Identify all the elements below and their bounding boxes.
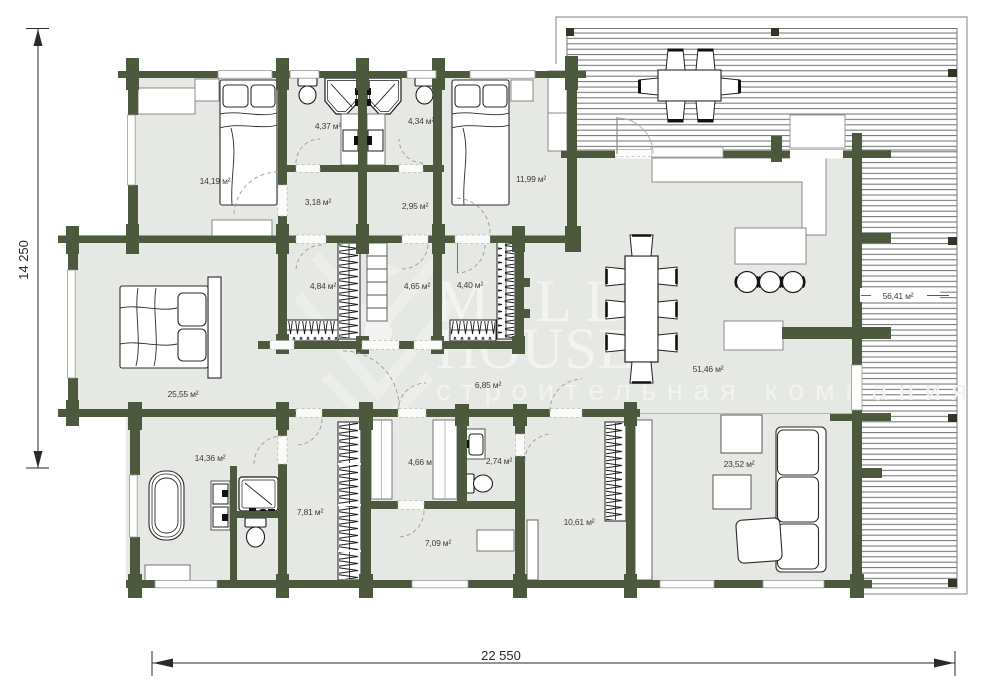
svg-text:4,37 м²: 4,37 м²	[315, 121, 342, 131]
svg-text:4,65 м²: 4,65 м²	[404, 281, 431, 291]
svg-text:4,34 м²: 4,34 м²	[408, 116, 435, 126]
svg-text:строительная компания: строительная компания	[436, 375, 978, 407]
svg-text:4,84 м²: 4,84 м²	[310, 281, 337, 291]
svg-text:2,74 м²: 2,74 м²	[486, 456, 513, 466]
svg-text:3,18 м²: 3,18 м²	[305, 197, 332, 207]
svg-text:22 550: 22 550	[481, 648, 521, 663]
svg-text:25,55 м²: 25,55 м²	[168, 389, 199, 399]
svg-text:51,46 м²: 51,46 м²	[693, 364, 724, 374]
svg-text:10,61 м²: 10,61 м²	[564, 517, 595, 527]
svg-text:2,95 м²: 2,95 м²	[402, 201, 429, 211]
svg-text:14 250: 14 250	[16, 240, 31, 280]
svg-text:56,41 м²: 56,41 м²	[883, 291, 914, 301]
svg-text:4,66 м: 4,66 м	[408, 457, 432, 467]
svg-text:23,52 м²: 23,52 м²	[724, 459, 755, 469]
svg-text:4,40 м²: 4,40 м²	[457, 280, 484, 290]
svg-text:7,09 м²: 7,09 м²	[425, 538, 452, 548]
svg-text:7,81 м²: 7,81 м²	[297, 507, 324, 517]
svg-text:14,19 м²: 14,19 м²	[200, 176, 231, 186]
svg-text:6,85 м²: 6,85 м²	[475, 380, 502, 390]
svg-text:14,36 м²: 14,36 м²	[195, 453, 226, 463]
svg-text:11,99 м²: 11,99 м²	[516, 174, 546, 184]
